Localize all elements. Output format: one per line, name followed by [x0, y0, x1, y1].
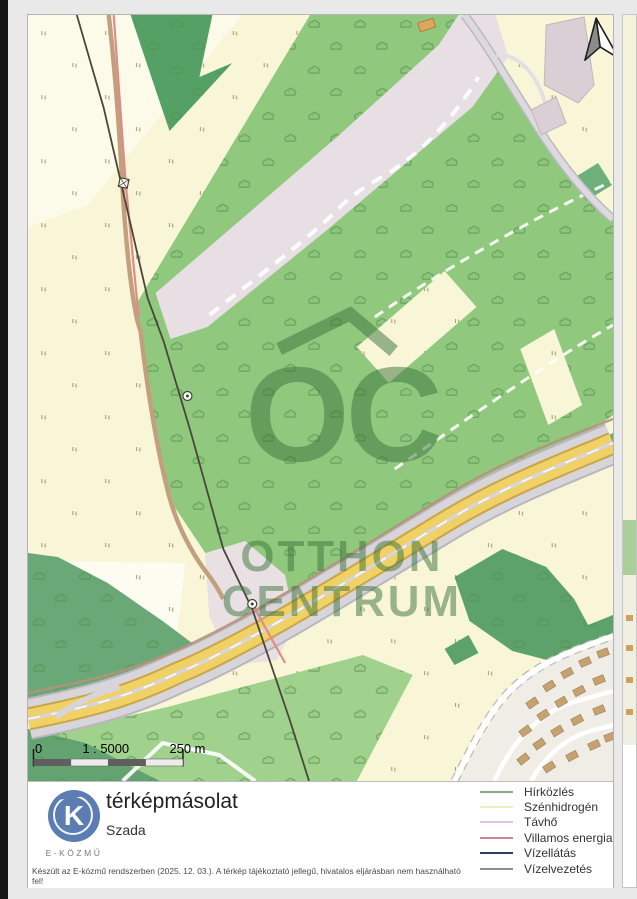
map-canvas: OC OTTHON CENTRUM 0 1 : 5000 250 m [28, 15, 613, 781]
title-block: térképmásolat Szada [106, 790, 238, 838]
legend-label: Villamos energia [524, 831, 613, 845]
map-copy-page: OC OTTHON CENTRUM 0 1 : 5000 250 m K [27, 14, 614, 888]
transformer-symbol [118, 178, 129, 189]
legend-label: Távhő [524, 815, 557, 829]
legend-line-swatch [480, 791, 513, 793]
watermark-line1: OTTHON [240, 532, 443, 581]
scale-zero-label: 0 [35, 741, 42, 756]
legend-item: Villamos energia [480, 830, 615, 845]
logo-ring [53, 795, 93, 835]
scale-distance-label: 250 m [169, 741, 205, 756]
settlement-name: Szada [106, 822, 238, 838]
legend-line-swatch [480, 821, 513, 823]
legend-item: Szénhidrogén [480, 799, 615, 814]
adjacent-page-sliver [622, 14, 637, 888]
legend-item: Távhő [480, 815, 615, 830]
watermark-line2: CENTRUM [222, 577, 462, 626]
pole-symbol [183, 392, 192, 401]
screenshot-root: { "map": { "watermark": { "monogram": "O… [0, 0, 637, 899]
legend-line-swatch [480, 837, 513, 839]
document-title: térképmásolat [106, 790, 238, 814]
legend-label: Vízellátás [524, 846, 576, 860]
legend: HírközlésSzénhidrogénTávhőVillamos energ… [480, 784, 615, 876]
legend-label: Szénhidrogén [524, 800, 598, 814]
legend-line-swatch [480, 806, 513, 808]
legend-item: Vízellátás [480, 846, 615, 861]
watermark-monogram: OC [245, 339, 439, 490]
scale-ratio-label: 1 : 5000 [82, 741, 129, 756]
legend-label: Vízelvezetés [524, 862, 592, 876]
legend-line-swatch [480, 852, 513, 854]
legend-label: Hírközlés [524, 785, 574, 799]
ekozmu-logo-mark: K [48, 790, 100, 842]
map-graphic: OC OTTHON CENTRUM 0 1 : 5000 250 m [28, 15, 613, 781]
disclaimer-text: Készült az E-közmű rendszerben (2025. 12… [32, 866, 472, 886]
window-edge [0, 0, 8, 899]
legend-item: Hírközlés [480, 784, 615, 799]
logo-caption: E-KÖZMŰ [35, 848, 113, 858]
legend-item: Vízelvezetés [480, 861, 615, 876]
otthon-centrum-watermark: OC OTTHON CENTRUM [222, 314, 462, 626]
info-panel: K E-KÖZMŰ térképmásolat Szada HírközlésS… [28, 781, 613, 888]
ekozmu-logo: K E-KÖZMŰ [35, 790, 113, 858]
legend-line-swatch [480, 868, 513, 870]
